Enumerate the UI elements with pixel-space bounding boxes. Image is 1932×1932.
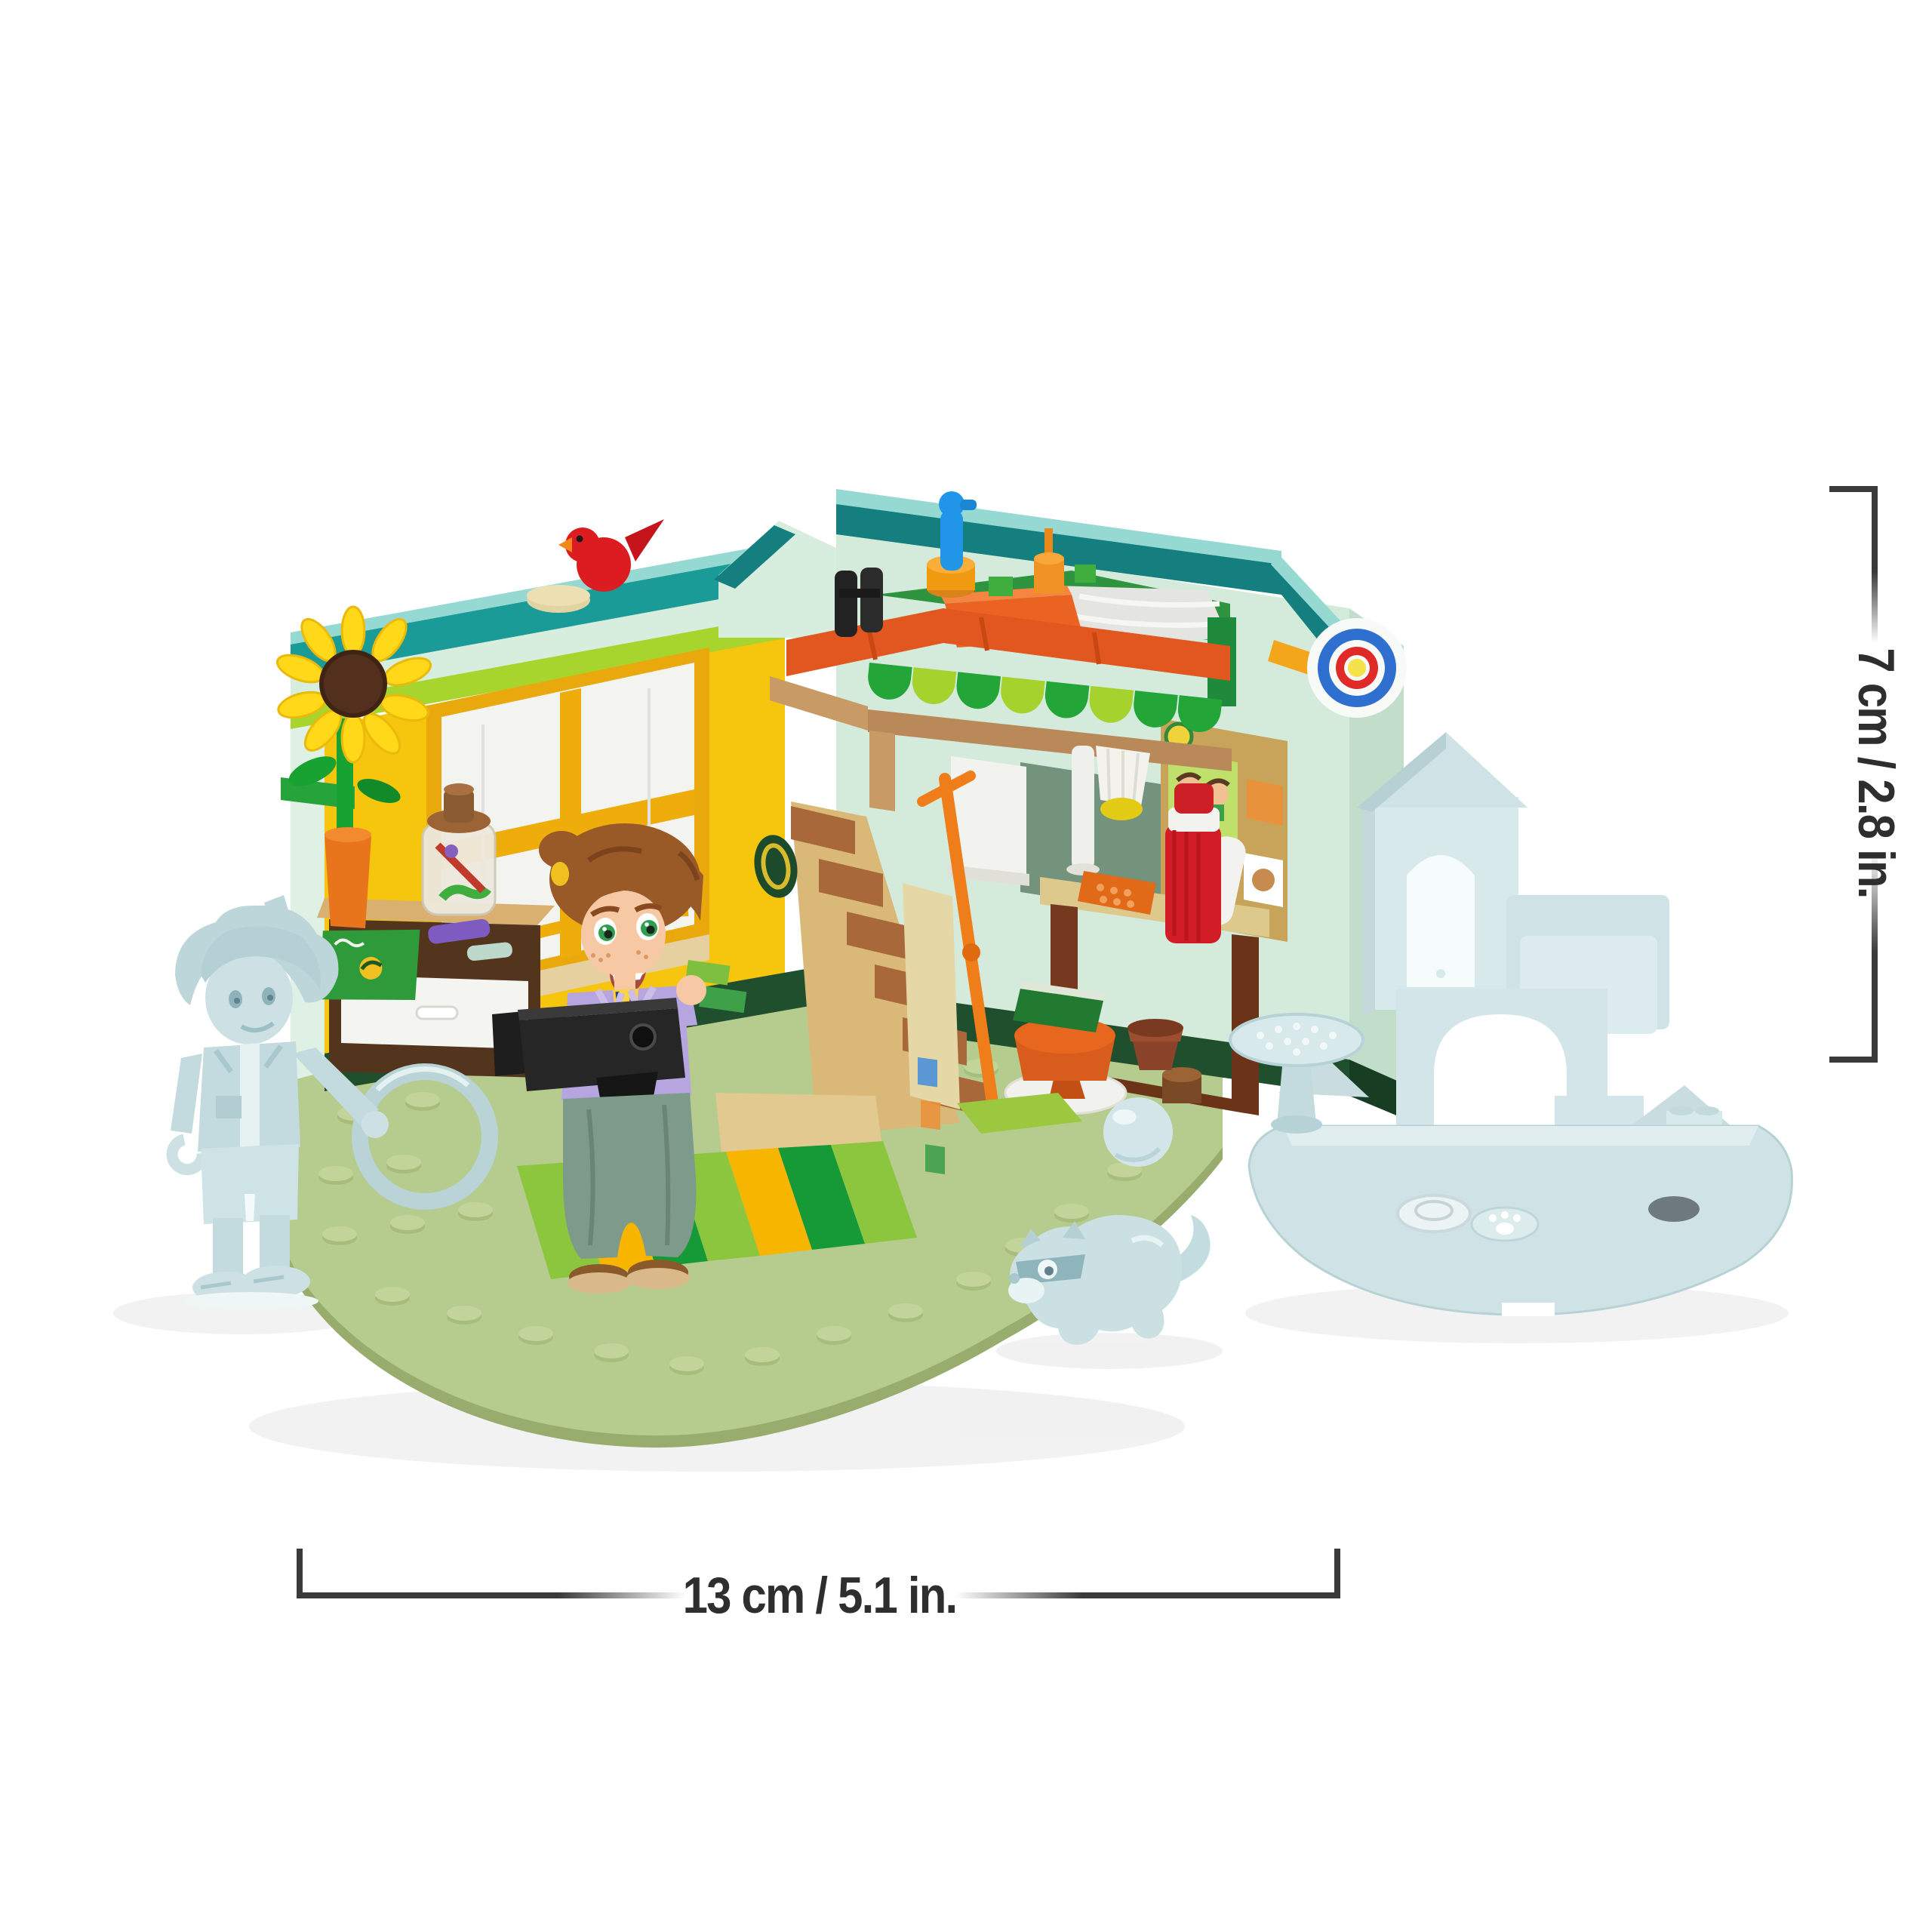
width-dimension-label: 13 cm / 5.1 in. [683,1570,957,1621]
hair-clip [551,862,569,886]
right-hand [676,975,706,1005]
ghost-hand [361,1111,389,1138]
dark-round-tile [1648,1196,1700,1222]
archery-target [1307,618,1407,718]
ghost-ball [1103,1097,1173,1167]
lego-set-photo [0,0,1932,1932]
barrel [1162,1067,1201,1103]
product-gallery-image: 13 cm / 5.1 in. 7 cm / 2.8 in. [0,0,1932,1932]
corner-gable [714,521,836,638]
paw-print-tile [1472,1207,1538,1241]
height-dimension-label: 7 cm / 2.8 in. [1850,648,1902,897]
